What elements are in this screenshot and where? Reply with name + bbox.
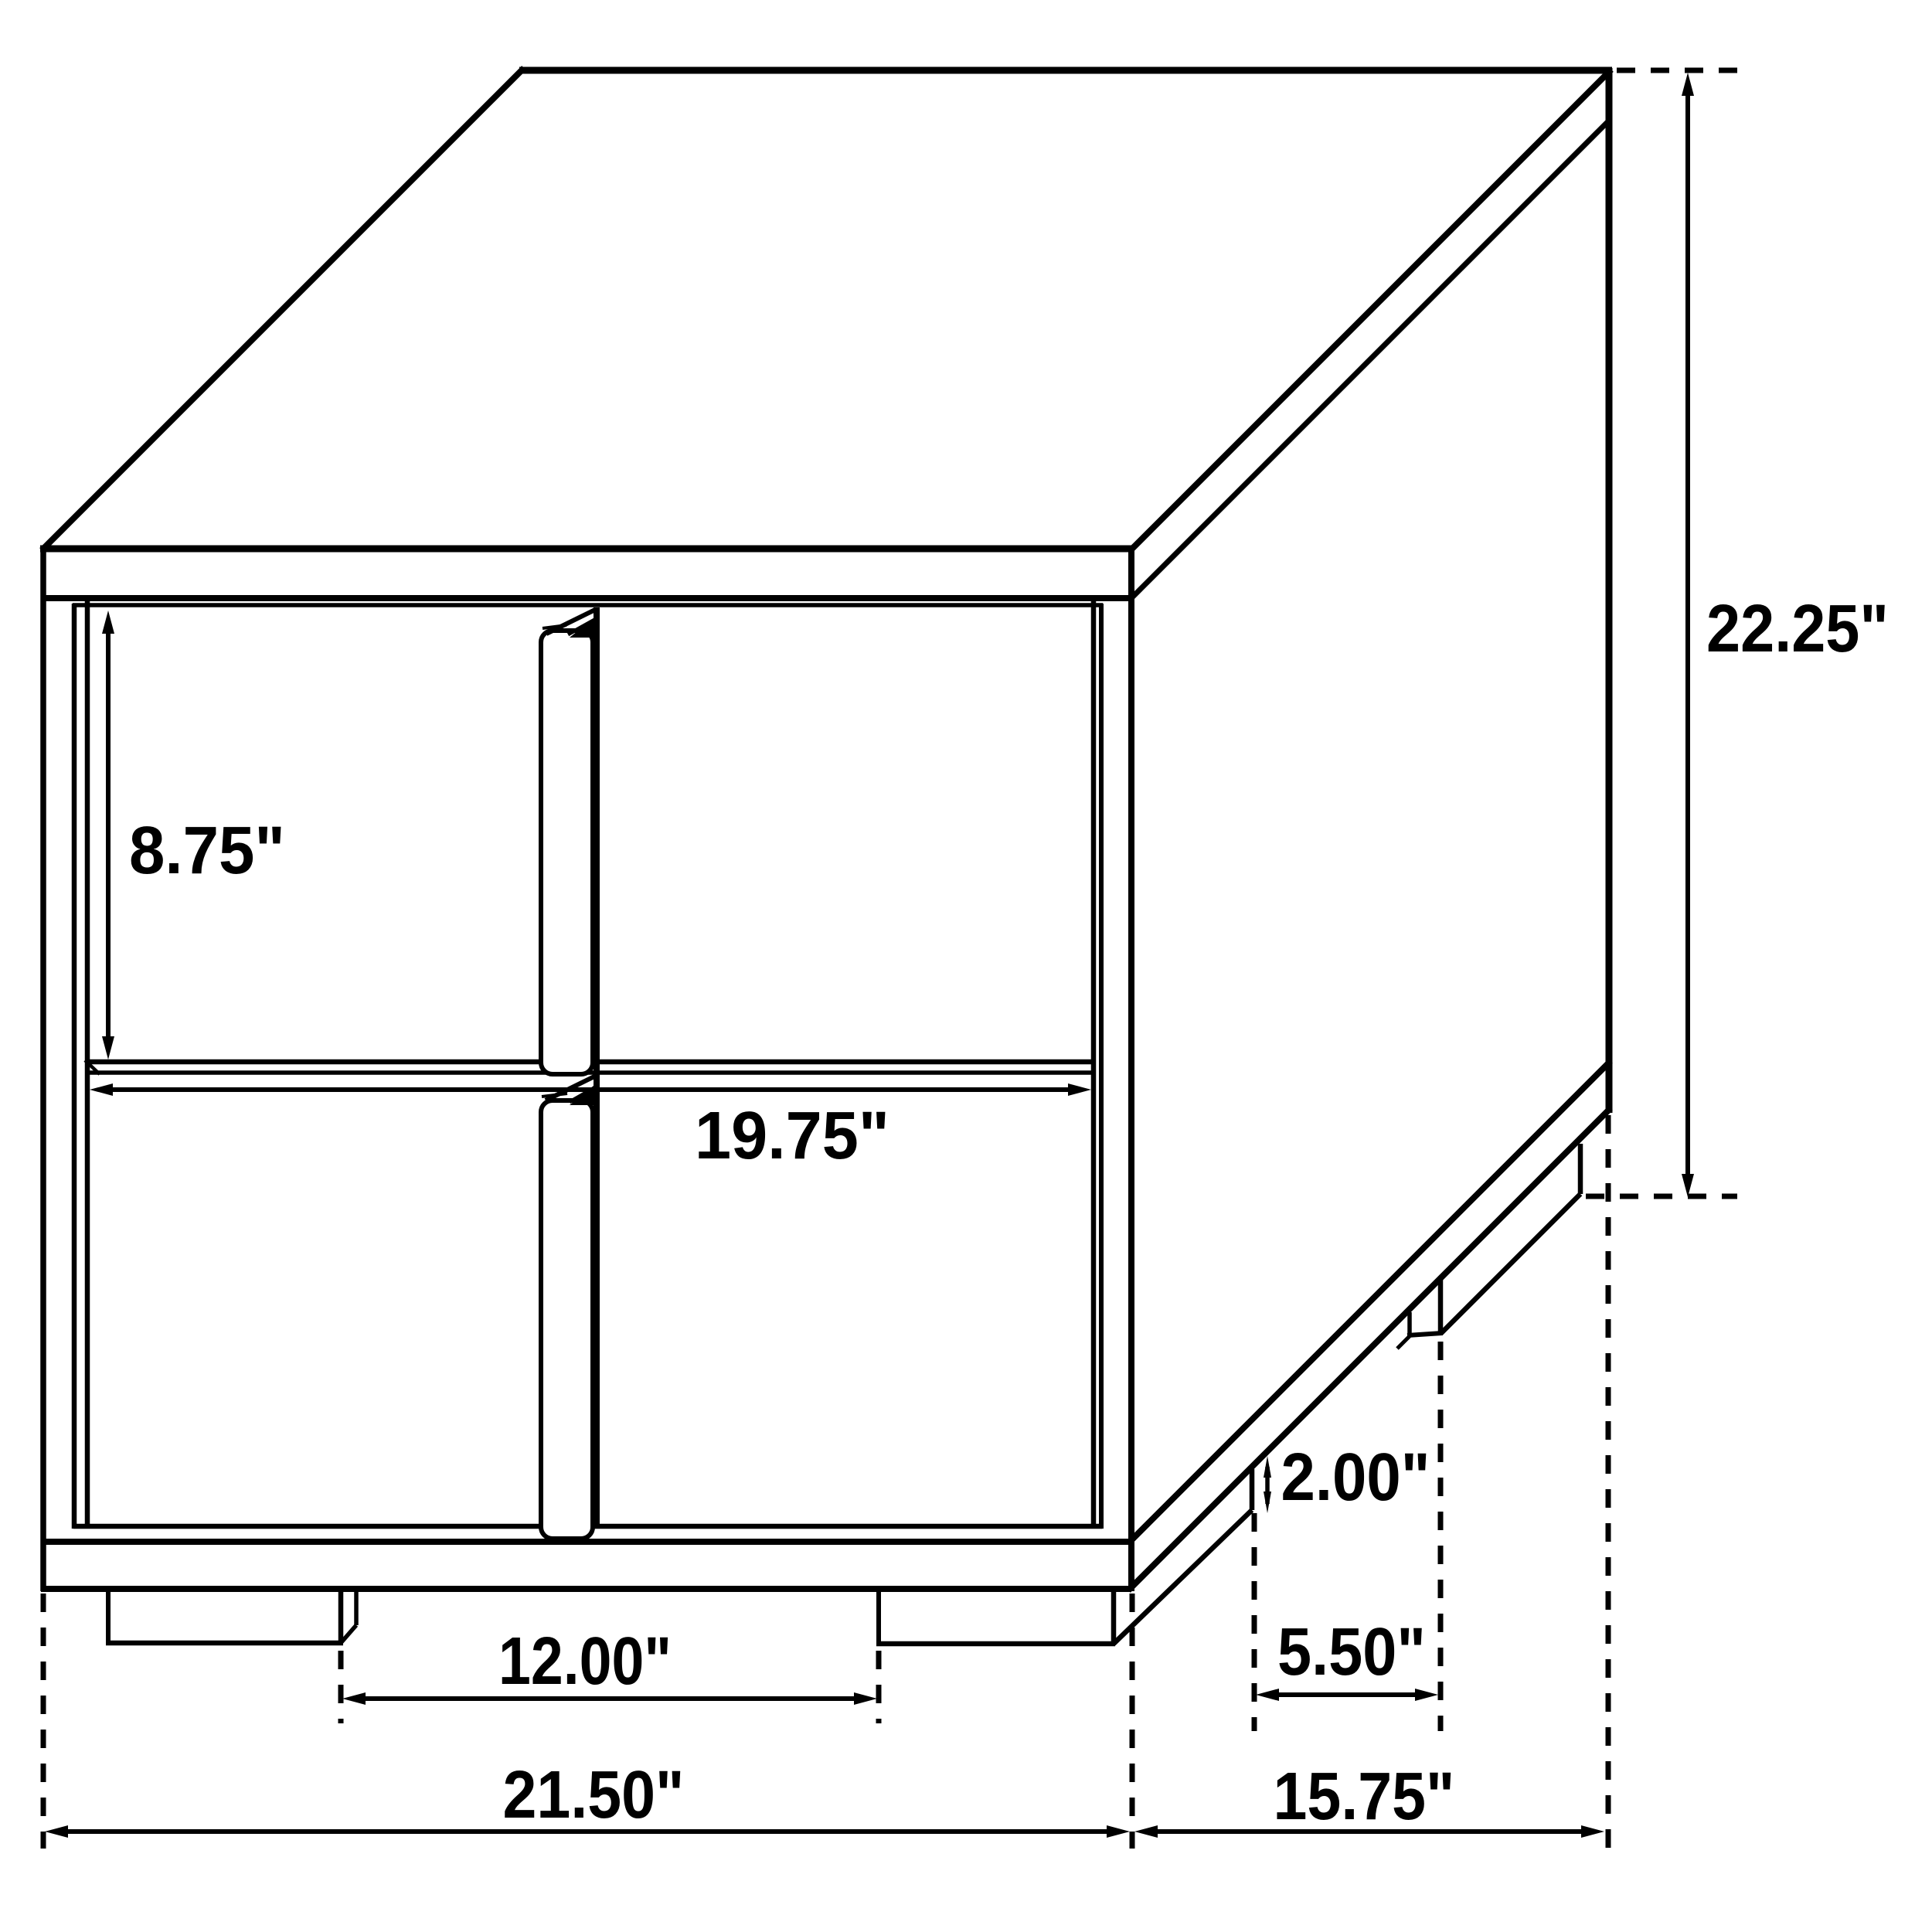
svg-text:2.00": 2.00" — [1281, 1440, 1430, 1515]
svg-text:22.25": 22.25" — [1706, 591, 1889, 666]
svg-text:21.50": 21.50" — [503, 1757, 685, 1832]
svg-text:5.50": 5.50" — [1277, 1614, 1426, 1689]
svg-text:19.75": 19.75" — [695, 1098, 889, 1173]
svg-text:12.00": 12.00" — [498, 1624, 672, 1699]
svg-text:8.75": 8.75" — [129, 813, 285, 888]
svg-text:15.75": 15.75" — [1274, 1759, 1455, 1834]
